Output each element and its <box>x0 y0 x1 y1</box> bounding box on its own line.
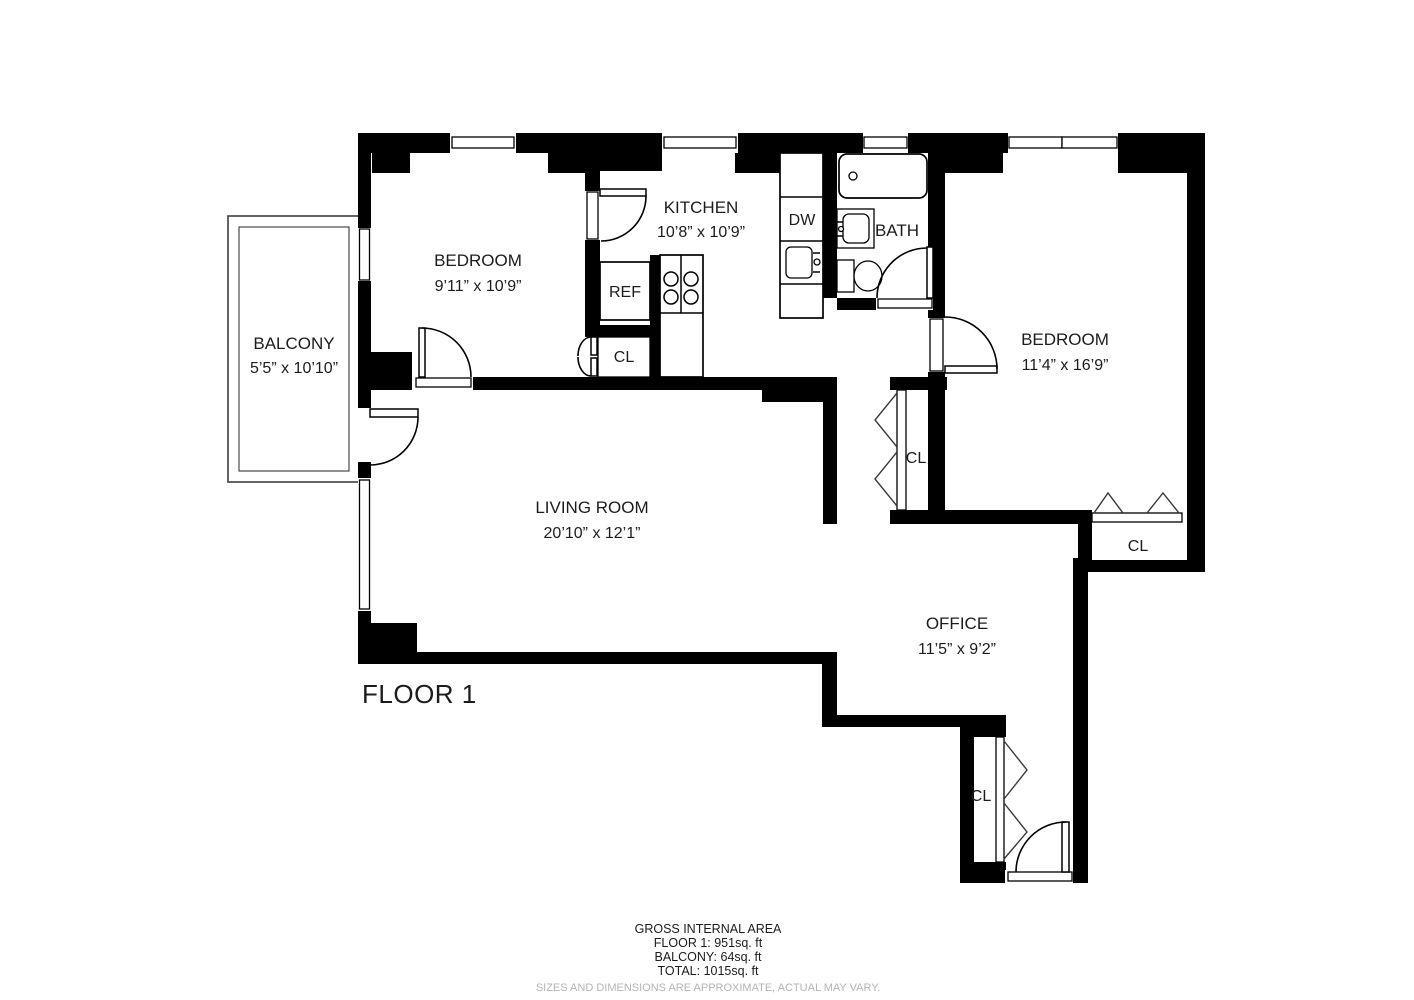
wall-left <box>358 462 371 478</box>
window-bedroom2-left <box>1009 137 1062 148</box>
window-bedroom1-side <box>360 229 370 280</box>
wall-pier <box>600 153 662 171</box>
wall-pier <box>735 153 780 173</box>
wall-kitchen-south-pier <box>762 377 837 402</box>
living-room-label: LIVING ROOM <box>535 498 648 517</box>
wall-office-top <box>890 510 1092 524</box>
balcony-label: BALCONY <box>253 334 334 353</box>
living-room-dims: 20’10” x 12’1” <box>544 525 641 542</box>
refrigerator-label: REF <box>609 284 641 301</box>
track-bedroom2-closet <box>1092 513 1182 522</box>
bedroom2-closet-bifold <box>1147 493 1179 513</box>
summary-disclaimer: SIZES AND DIMENSIONS ARE APPROXIMATE, AC… <box>536 982 880 994</box>
bath-door-swing <box>877 248 927 298</box>
entry-door-leaf <box>1062 822 1069 872</box>
track-entry-closet <box>996 737 1004 862</box>
wall-office-right <box>1073 558 1088 883</box>
closet-door-swing <box>578 357 591 376</box>
bedroom2-closet-label: CL <box>1128 538 1149 555</box>
entry-closet-bifold <box>1004 741 1027 799</box>
entry-closet-label: CL <box>971 788 992 805</box>
kitchen-sink <box>786 247 812 278</box>
wall-left <box>358 133 371 228</box>
summary-total-area: TOTAL: 1015sq. ft <box>658 964 760 978</box>
balcony-door-opening <box>358 408 371 462</box>
bedroom1-door-swing <box>422 328 471 377</box>
jamb-bedroom2-door <box>930 319 943 371</box>
bedroom1-door-leaf <box>419 328 425 377</box>
threshold-entry <box>1008 872 1072 881</box>
window-living-room <box>360 480 370 609</box>
wall-kitchen-south <box>588 377 762 390</box>
bathtub-drain <box>849 172 857 180</box>
dishwasher-label: DW <box>789 212 817 229</box>
toilet-tank <box>837 260 854 292</box>
bedroom2-door-swing <box>945 317 997 369</box>
entry-closet-bifold <box>1004 803 1027 859</box>
kitchen-counter <box>780 153 823 318</box>
floor-title: FLOOR 1 <box>362 679 477 709</box>
wall-kitchen-bath-divider <box>823 153 837 298</box>
kitchen-door-swing <box>601 196 646 241</box>
wall-office-bottom <box>822 715 974 727</box>
summary-title: GROSS INTERNAL AREA <box>635 922 782 936</box>
window-bath <box>864 137 907 148</box>
bath-door-leaf <box>927 247 933 298</box>
kitchen-fixtures <box>598 153 823 377</box>
wall-entry-closet-top <box>960 715 1006 737</box>
wall-above-closet <box>585 325 652 337</box>
floor-plan-drawing: BALCONY 5’5” x 10’10” BEDROOM 9’11” x 10… <box>0 0 1414 1000</box>
hall-closet-bifold <box>875 452 897 506</box>
balcony-door-swing <box>370 417 418 465</box>
wall-pier <box>1118 153 1187 173</box>
hall-closet-bifold <box>875 393 897 447</box>
wall-right <box>1187 133 1205 572</box>
bedroom2-label: BEDROOM <box>1021 330 1109 349</box>
bath-faucet <box>839 227 844 232</box>
closet-door-swing <box>578 337 591 356</box>
wall-bedroom2-left <box>928 372 945 524</box>
window-bedroom1-top <box>452 137 514 148</box>
wall-bedroom1-south-pier <box>358 352 412 390</box>
window-bedroom2-right <box>1062 137 1117 148</box>
closet-door-leaf <box>591 358 597 376</box>
summary-balcony-area: BALCONY: 64sq. ft <box>655 950 763 964</box>
wall-pier <box>945 153 1003 173</box>
office-label: OFFICE <box>926 614 988 633</box>
kitchen-door-leaf <box>600 189 646 196</box>
track-hall-closet <box>897 390 906 510</box>
kitchen-dims: 10’8” x 10’9” <box>657 224 745 241</box>
kitchen-label: KITCHEN <box>664 198 739 217</box>
wall-living-bottom <box>358 652 837 664</box>
wall-bedroom1-kitchen-divider <box>585 133 600 191</box>
wall-bedroom1-kitchen-divider <box>585 240 600 325</box>
bedroom2-dims: 11’4” x 16’9” <box>1022 357 1109 374</box>
office-dims: 11’5” x 9’2” <box>918 641 996 658</box>
bedroom1-dims: 9’11” x 10’9” <box>435 278 522 295</box>
bedroom2-closet-bifold <box>1094 493 1123 513</box>
wall-pier <box>372 153 410 173</box>
window-kitchen <box>664 137 736 148</box>
closet-door-leaf <box>591 337 597 355</box>
threshold-bath <box>878 299 932 308</box>
entry-door-swing <box>1016 822 1066 872</box>
bath-label: BATH <box>875 221 919 240</box>
summary-floor-area: FLOOR 1: 951sq. ft <box>654 936 763 950</box>
jamb-kitchen-door <box>587 192 598 239</box>
wall-pier <box>548 153 585 173</box>
floor-plan-page: BALCONY 5’5” x 10’10” BEDROOM 9’11” x 10… <box>0 0 1414 1000</box>
balcony-door-leaf <box>370 409 418 417</box>
wall-bedroom1-south <box>473 377 588 390</box>
windows-and-thresholds <box>360 137 1183 881</box>
kitchen-faucet <box>814 259 820 265</box>
bedroom2-door-leaf <box>945 366 997 373</box>
area-summary: GROSS INTERNAL AREA FLOOR 1: 951sq. ft B… <box>536 922 880 994</box>
kitchen-closet-label: CL <box>614 349 635 366</box>
wall-closet-bedroom2-bottom <box>1078 560 1205 572</box>
threshold-bedroom1 <box>416 378 471 387</box>
bath-sink <box>843 214 869 243</box>
hall-closet-label: CL <box>906 450 927 467</box>
bedroom1-label: BEDROOM <box>434 251 522 270</box>
balcony-dims: 5’5” x 10’10” <box>250 360 338 377</box>
